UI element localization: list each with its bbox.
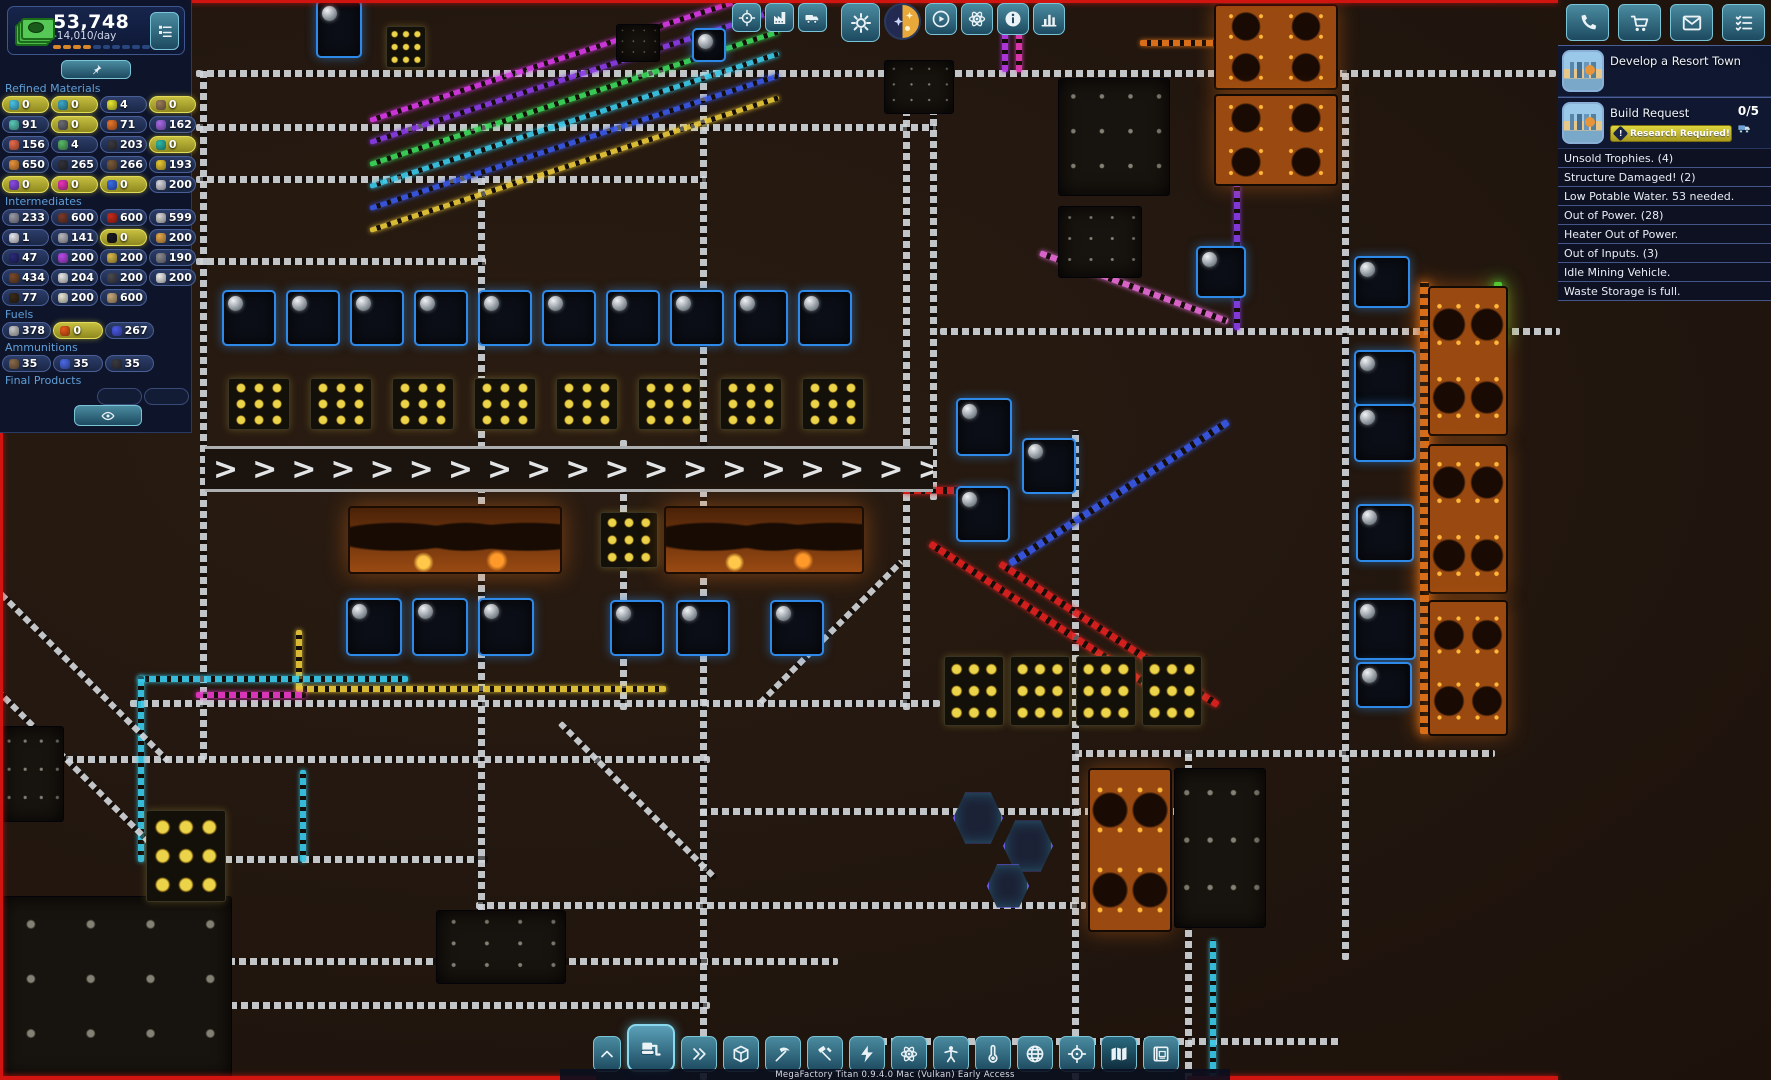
resource-count: 600 bbox=[71, 211, 94, 224]
resource-pill[interactable]: 266 bbox=[100, 156, 147, 173]
resource-icon bbox=[9, 359, 19, 369]
section-label: Fuels bbox=[0, 306, 191, 322]
resource-icon bbox=[58, 213, 68, 223]
resource-icon bbox=[156, 273, 166, 283]
alert-border-bottom-right bbox=[1187, 1076, 1558, 1080]
conveyor-belt[interactable] bbox=[130, 700, 940, 707]
resource-icon bbox=[9, 233, 19, 243]
resource-pill[interactable]: 233 bbox=[2, 209, 49, 226]
mining-menu-button[interactable] bbox=[765, 1036, 801, 1072]
factory-building[interactable] bbox=[146, 810, 226, 902]
resource-icon bbox=[156, 213, 166, 223]
factory-building[interactable] bbox=[734, 290, 788, 346]
conveyor-belt[interactable] bbox=[903, 70, 910, 710]
messages-button[interactable] bbox=[1670, 4, 1713, 41]
resource-icon bbox=[107, 233, 117, 243]
resource-pill[interactable]: 0 bbox=[149, 136, 196, 153]
factory-building[interactable] bbox=[670, 290, 724, 346]
factory-building[interactable] bbox=[692, 28, 726, 62]
factory-building[interactable] bbox=[616, 24, 660, 62]
resource-pill[interactable]: 0 bbox=[2, 96, 49, 113]
resource-pill[interactable]: 600 bbox=[100, 289, 147, 306]
research-button[interactable] bbox=[961, 3, 993, 35]
factory-building[interactable] bbox=[478, 290, 532, 346]
resource-count: 378 bbox=[22, 324, 45, 337]
resource-pill[interactable]: 0 bbox=[51, 116, 98, 133]
resource-icon bbox=[112, 326, 122, 336]
game-speed-button[interactable] bbox=[925, 3, 957, 35]
resource-count: 267 bbox=[125, 324, 148, 337]
resource-count: 204 bbox=[71, 271, 94, 284]
resource-count: 1 bbox=[22, 231, 30, 244]
resource-count: 4 bbox=[120, 98, 128, 111]
resource-count: 0 bbox=[71, 98, 79, 111]
resource-orb bbox=[962, 404, 977, 419]
resource-icon bbox=[107, 160, 117, 170]
vehicle-icon bbox=[1737, 120, 1763, 136]
resource-count: 200 bbox=[169, 271, 192, 284]
factory-building[interactable] bbox=[1058, 78, 1170, 196]
resource-orb bbox=[484, 604, 499, 619]
factory-building[interactable] bbox=[414, 290, 468, 346]
factory-building[interactable] bbox=[1076, 656, 1136, 726]
box-icon bbox=[731, 1044, 751, 1064]
resource-count: 0 bbox=[169, 98, 177, 111]
factories-button[interactable] bbox=[765, 3, 794, 32]
research-required-badge[interactable]: ! Research Required! bbox=[1610, 125, 1732, 142]
factory-building[interactable] bbox=[1428, 444, 1508, 594]
resource-icon bbox=[9, 140, 19, 150]
conveyor-belt[interactable] bbox=[196, 70, 1556, 77]
factory-building[interactable] bbox=[1214, 4, 1338, 90]
resource-pill[interactable]: 4 bbox=[100, 96, 147, 113]
section-label: Refined Materials bbox=[0, 80, 191, 96]
resource-orb bbox=[1360, 410, 1375, 425]
resource-count: 4 bbox=[71, 138, 79, 151]
factory-building[interactable] bbox=[1428, 286, 1508, 436]
atom-icon bbox=[967, 9, 987, 29]
resource-icon bbox=[156, 233, 166, 243]
resource-orb bbox=[1360, 262, 1375, 277]
factory-building[interactable] bbox=[802, 378, 864, 430]
resource-icon bbox=[60, 359, 70, 369]
conveyor-belt[interactable] bbox=[558, 721, 718, 881]
factory-building[interactable] bbox=[944, 656, 1004, 726]
resource-pill[interactable]: 193 bbox=[149, 156, 196, 173]
factory-building[interactable] bbox=[1354, 256, 1410, 308]
resource-count: 141 bbox=[71, 231, 94, 244]
version-text: MegaFactory Titan 0.9.4.0 Mac (Vulkan) E… bbox=[775, 1070, 1014, 1080]
conveyor-belt[interactable] bbox=[196, 258, 486, 265]
resource-pill[interactable]: 162 bbox=[149, 116, 196, 133]
conveyor-belt[interactable] bbox=[1075, 750, 1495, 757]
targeting-menu-button[interactable] bbox=[1059, 1036, 1095, 1072]
resource-pill[interactable]: 0 bbox=[53, 322, 102, 339]
resource-count: 35 bbox=[125, 357, 140, 370]
resource-pill[interactable]: 4 bbox=[51, 136, 98, 153]
resource-orb bbox=[356, 296, 371, 311]
section-label: Ammunitions bbox=[0, 339, 191, 355]
resource-count: 434 bbox=[22, 271, 45, 284]
resource-sections: Refined Materials00409107116215642030650… bbox=[0, 80, 191, 405]
resource-orb bbox=[776, 606, 791, 621]
resource-pill[interactable]: 203 bbox=[100, 136, 147, 153]
factory-building[interactable] bbox=[1354, 598, 1416, 660]
alert-item[interactable]: Idle Mining Vehicle. bbox=[1558, 263, 1771, 282]
factory-building[interactable] bbox=[1354, 404, 1416, 462]
phone-icon bbox=[1577, 12, 1599, 34]
resource-icon bbox=[58, 180, 68, 190]
resource-count: 162 bbox=[169, 118, 192, 131]
resource-pill[interactable]: 200 bbox=[100, 249, 147, 266]
factory-building[interactable] bbox=[606, 290, 660, 346]
resource-icon bbox=[58, 253, 68, 263]
resource-pill[interactable]: 0 bbox=[2, 176, 49, 193]
resource-pill[interactable]: 265 bbox=[51, 156, 98, 173]
factory-building[interactable] bbox=[1428, 600, 1508, 736]
toggle-visibility-button[interactable] bbox=[74, 405, 142, 426]
conveyor-belt[interactable] bbox=[1342, 70, 1349, 960]
conveyor-belt[interactable] bbox=[930, 70, 937, 500]
truck-icon bbox=[1737, 120, 1753, 136]
warning-icon: ! bbox=[1613, 126, 1629, 142]
resource-icon bbox=[107, 273, 117, 283]
resource-icon bbox=[156, 160, 166, 170]
bulldozer-tool-button[interactable] bbox=[627, 1024, 675, 1072]
factory-icon bbox=[771, 9, 789, 27]
factory-building[interactable] bbox=[1174, 768, 1266, 928]
resource-count: 0 bbox=[120, 178, 128, 191]
resource-count: 193 bbox=[169, 158, 192, 171]
factory-building[interactable] bbox=[1142, 656, 1202, 726]
resource-pill[interactable]: 47 bbox=[2, 249, 49, 266]
resource-count: 0 bbox=[169, 138, 177, 151]
resource-pill[interactable]: 378 bbox=[2, 322, 51, 339]
resource-pill[interactable]: 599 bbox=[149, 209, 196, 226]
factory-building[interactable] bbox=[310, 378, 372, 430]
tasks-icon bbox=[1733, 12, 1755, 34]
alert-list: Unsold Trophies. (4)Structure Damaged! (… bbox=[1558, 149, 1771, 301]
resource-icon bbox=[107, 140, 117, 150]
resources-sidebar: 53,748 -14,010/day Refined Materials0040… bbox=[0, 0, 192, 433]
factory-building[interactable] bbox=[956, 486, 1010, 542]
bottom-toolbar bbox=[0, 1024, 1771, 1072]
resource-pill[interactable]: 200 bbox=[100, 269, 147, 286]
resource-icon bbox=[156, 140, 166, 150]
resource-orb bbox=[682, 606, 697, 621]
resource-icon bbox=[156, 180, 166, 190]
factory-building[interactable] bbox=[798, 290, 852, 346]
resource-pill[interactable]: 0 bbox=[51, 176, 98, 193]
resource-pill[interactable]: 77 bbox=[2, 289, 49, 306]
resource-orb bbox=[322, 6, 337, 21]
alert-item[interactable]: Heater Out of Power. bbox=[1558, 225, 1771, 244]
resource-pill[interactable]: 0 bbox=[100, 229, 147, 246]
factory-building[interactable] bbox=[228, 378, 290, 430]
conveyor-belt[interactable] bbox=[1072, 430, 1079, 1080]
science-menu-button[interactable] bbox=[891, 1036, 927, 1072]
factory-building[interactable] bbox=[542, 290, 596, 346]
factory-building[interactable] bbox=[1196, 246, 1246, 298]
collapse-toolbar-button[interactable] bbox=[593, 1036, 621, 1072]
resource-icon bbox=[156, 253, 166, 263]
resource-pill[interactable]: 600 bbox=[51, 209, 98, 226]
map-tool-button[interactable] bbox=[1101, 1036, 1137, 1072]
blueprint-menu-button[interactable] bbox=[1143, 1036, 1179, 1072]
gear-icon bbox=[849, 11, 873, 35]
alert-item[interactable]: Waste Storage is full. bbox=[1558, 282, 1771, 301]
resource-pill[interactable]: 1 bbox=[2, 229, 49, 246]
alert-item[interactable]: Out of Inputs. (3) bbox=[1558, 244, 1771, 263]
factory-building[interactable] bbox=[0, 726, 64, 822]
resource-count: 233 bbox=[22, 211, 45, 224]
resource-icon bbox=[107, 293, 117, 303]
resource-pill[interactable]: 200 bbox=[149, 176, 196, 193]
resource-orb bbox=[1028, 444, 1043, 459]
conveyor-belt[interactable] bbox=[196, 692, 306, 698]
resource-orb bbox=[676, 296, 691, 311]
resource-icon bbox=[9, 253, 19, 263]
game-map[interactable]: >>>>>>>>>>>>>>>>>>>>>>>>>> bbox=[0, 0, 1771, 1080]
conveyor-belt[interactable] bbox=[1140, 40, 1220, 46]
factory-building[interactable] bbox=[1356, 504, 1414, 562]
quest-item[interactable]: Develop a Resort Town bbox=[1558, 45, 1771, 97]
info-button[interactable] bbox=[997, 3, 1029, 35]
chevronup-icon bbox=[597, 1044, 617, 1064]
resource-orb bbox=[612, 296, 627, 311]
settings-button[interactable] bbox=[841, 3, 880, 42]
pickaxe-icon bbox=[773, 1044, 793, 1064]
factory-building[interactable] bbox=[286, 290, 340, 346]
factory-building[interactable] bbox=[676, 600, 730, 656]
resource-orb bbox=[1362, 510, 1377, 525]
resource-pill[interactable]: 156 bbox=[2, 136, 49, 153]
alert-item[interactable]: Structure Damaged! (2) bbox=[1558, 168, 1771, 187]
resource-pill[interactable]: 267 bbox=[105, 322, 154, 339]
resource-pill[interactable]: 141 bbox=[51, 229, 98, 246]
bolt-icon bbox=[857, 1044, 877, 1064]
conveyor-arrow-lane[interactable]: >>>>>>>>>>>>>>>>>>>>>>>>>> bbox=[205, 446, 933, 492]
money-panel[interactable]: 53,748 -14,010/day bbox=[7, 6, 185, 55]
factory-building[interactable] bbox=[1058, 206, 1142, 278]
money-icon bbox=[15, 18, 49, 44]
resource-icon bbox=[9, 160, 19, 170]
alert-item[interactable]: Out of Power. (28) bbox=[1558, 206, 1771, 225]
conveyor-belt[interactable] bbox=[230, 1002, 710, 1009]
conveyor-belt[interactable] bbox=[300, 770, 306, 862]
resource-pill[interactable]: 35 bbox=[105, 355, 154, 372]
statistics-button[interactable] bbox=[1033, 3, 1065, 35]
factory-building[interactable] bbox=[952, 790, 1004, 846]
blueprint-icon bbox=[1151, 1044, 1171, 1064]
resource-pill[interactable]: 200 bbox=[149, 229, 196, 246]
resource-count: 47 bbox=[22, 251, 37, 264]
quest-item[interactable]: Build Request ! Research Required!0/5 bbox=[1558, 97, 1771, 149]
resource-icon bbox=[58, 120, 68, 130]
logistics-menu-button[interactable] bbox=[723, 1036, 759, 1072]
resource-pill[interactable]: 434 bbox=[2, 269, 49, 286]
factory-building[interactable] bbox=[222, 290, 276, 346]
cart-icon bbox=[1629, 12, 1651, 34]
map-icon bbox=[1109, 1044, 1129, 1064]
resource-icon bbox=[58, 100, 68, 110]
resource-pill[interactable]: 200 bbox=[51, 249, 98, 266]
pin-panel-button[interactable] bbox=[61, 60, 131, 79]
factory-building[interactable] bbox=[386, 26, 426, 68]
factory-building[interactable] bbox=[436, 910, 566, 984]
resource-icon bbox=[9, 100, 19, 110]
conveyors-menu-button[interactable] bbox=[681, 1036, 717, 1072]
resource-count: 200 bbox=[71, 291, 94, 304]
factory-building[interactable] bbox=[610, 600, 664, 656]
conveyor-belt[interactable] bbox=[138, 676, 408, 682]
resource-count: 77 bbox=[22, 291, 37, 304]
resource-count: 190 bbox=[169, 251, 192, 264]
factory-building[interactable] bbox=[348, 506, 562, 574]
resource-orb bbox=[292, 296, 307, 311]
factory-building[interactable] bbox=[478, 598, 534, 656]
conveyor-belt[interactable] bbox=[296, 686, 666, 692]
planet-menu-button[interactable] bbox=[1017, 1036, 1053, 1072]
section-label: Final Products bbox=[0, 372, 191, 388]
finance-details-button[interactable] bbox=[150, 12, 179, 50]
resource-pill[interactable]: 190 bbox=[149, 249, 196, 266]
factory-building[interactable] bbox=[412, 598, 468, 656]
resource-pill[interactable]: 204 bbox=[51, 269, 98, 286]
resource-pill[interactable]: 91 bbox=[2, 116, 49, 133]
factory-building[interactable] bbox=[770, 600, 824, 656]
factory-building[interactable] bbox=[1022, 438, 1076, 494]
resource-pill[interactable]: 71 bbox=[100, 116, 147, 133]
resource-count: 200 bbox=[169, 178, 192, 191]
resource-icon bbox=[107, 253, 117, 263]
chart-icon bbox=[1039, 9, 1059, 29]
factory-building[interactable] bbox=[638, 378, 700, 430]
day-night-toggle[interactable] bbox=[884, 3, 921, 40]
resource-orb bbox=[804, 296, 819, 311]
factory-building[interactable] bbox=[346, 598, 402, 656]
resource-count: 35 bbox=[73, 357, 88, 370]
resource-pill[interactable]: 200 bbox=[51, 289, 98, 306]
conveyor-belt[interactable] bbox=[476, 902, 1086, 909]
resource-icon bbox=[58, 160, 68, 170]
factory-building[interactable] bbox=[1088, 768, 1172, 932]
resource-icon bbox=[9, 120, 19, 130]
locate-button[interactable] bbox=[732, 3, 761, 32]
climate-menu-button[interactable] bbox=[975, 1036, 1011, 1072]
conveyor-belt[interactable] bbox=[700, 70, 707, 1080]
resource-count: 600 bbox=[120, 291, 143, 304]
resource-pill[interactable]: 35 bbox=[53, 355, 102, 372]
resource-count: 35 bbox=[22, 357, 37, 370]
factory-building[interactable] bbox=[1354, 350, 1416, 406]
resource-pill[interactable] bbox=[97, 388, 142, 405]
resource-pill[interactable]: 200 bbox=[149, 269, 196, 286]
workforce-menu-button[interactable] bbox=[933, 1036, 969, 1072]
tools-icon bbox=[815, 1044, 835, 1064]
bulldozer-icon bbox=[638, 1035, 664, 1061]
list-icon bbox=[156, 22, 174, 40]
resource-orb bbox=[698, 34, 713, 49]
quest-panel: Develop a Resort Town Build Request ! Re… bbox=[1558, 0, 1771, 301]
resource-count: 0 bbox=[22, 178, 30, 191]
resource-pill[interactable]: 650 bbox=[2, 156, 49, 173]
task-list-button[interactable] bbox=[1722, 4, 1765, 41]
crosshair-icon bbox=[738, 9, 756, 27]
info-icon bbox=[1003, 9, 1023, 29]
resource-pill[interactable]: 600 bbox=[100, 209, 147, 226]
resource-count: 200 bbox=[120, 251, 143, 264]
factory-building[interactable] bbox=[664, 506, 864, 574]
factory-building[interactable] bbox=[1356, 662, 1412, 708]
resource-icon bbox=[107, 120, 117, 130]
resource-orb bbox=[352, 604, 367, 619]
factory-building[interactable] bbox=[956, 398, 1012, 456]
eye-icon bbox=[101, 409, 115, 423]
factory-building[interactable] bbox=[1010, 656, 1070, 726]
play-icon bbox=[931, 9, 951, 29]
pin-icon bbox=[90, 63, 103, 76]
resource-count: 0 bbox=[22, 98, 30, 111]
resource-pill[interactable]: 0 bbox=[51, 96, 98, 113]
factory-building[interactable] bbox=[720, 378, 782, 430]
resource-orb bbox=[1360, 604, 1375, 619]
factory-building[interactable] bbox=[1214, 94, 1338, 186]
factory-building[interactable] bbox=[316, 0, 362, 58]
resource-icon bbox=[9, 293, 19, 303]
alert-border-bottom-left bbox=[0, 1076, 596, 1080]
alert-item[interactable]: Low Potable Water. 53 needed. bbox=[1558, 187, 1771, 206]
power-menu-button[interactable] bbox=[849, 1036, 885, 1072]
factory-building[interactable] bbox=[474, 378, 536, 430]
resource-orb bbox=[484, 296, 499, 311]
money-per-day: -14,010/day bbox=[53, 31, 150, 42]
alert-item[interactable]: Unsold Trophies. (4) bbox=[1558, 149, 1771, 168]
resource-count: 203 bbox=[120, 138, 143, 151]
resource-count: 0 bbox=[73, 324, 81, 337]
production-menu-button[interactable] bbox=[807, 1036, 843, 1072]
contacts-button[interactable] bbox=[1566, 4, 1609, 41]
factory-building[interactable] bbox=[600, 512, 658, 568]
resource-icon bbox=[60, 326, 70, 336]
factory-building[interactable] bbox=[556, 378, 618, 430]
resource-pill[interactable]: 0 bbox=[149, 96, 196, 113]
resource-icon bbox=[58, 293, 68, 303]
factory-building[interactable] bbox=[884, 60, 954, 114]
resource-icon bbox=[156, 100, 166, 110]
factory-building[interactable] bbox=[392, 378, 454, 430]
resource-orb bbox=[228, 296, 243, 311]
resource-pill[interactable]: 35 bbox=[2, 355, 51, 372]
market-button[interactable] bbox=[1618, 4, 1661, 41]
resource-count: 156 bbox=[22, 138, 45, 151]
thermo-icon bbox=[983, 1044, 1003, 1064]
factory-building[interactable] bbox=[350, 290, 404, 346]
vehicles-button[interactable] bbox=[798, 3, 827, 32]
resource-orb bbox=[420, 296, 435, 311]
resource-pill[interactable]: 0 bbox=[100, 176, 147, 193]
resource-pill[interactable] bbox=[144, 388, 189, 405]
quest-title: Develop a Resort Town bbox=[1610, 50, 1767, 68]
section-label: Intermediates bbox=[0, 193, 191, 209]
resource-count: 91 bbox=[22, 118, 37, 131]
resource-count: 200 bbox=[120, 271, 143, 284]
resource-icon bbox=[9, 273, 19, 283]
conveyor-belt[interactable] bbox=[200, 70, 207, 760]
resource-count: 200 bbox=[71, 251, 94, 264]
quest-thumbnail bbox=[1562, 50, 1604, 92]
truck-icon bbox=[804, 9, 822, 27]
